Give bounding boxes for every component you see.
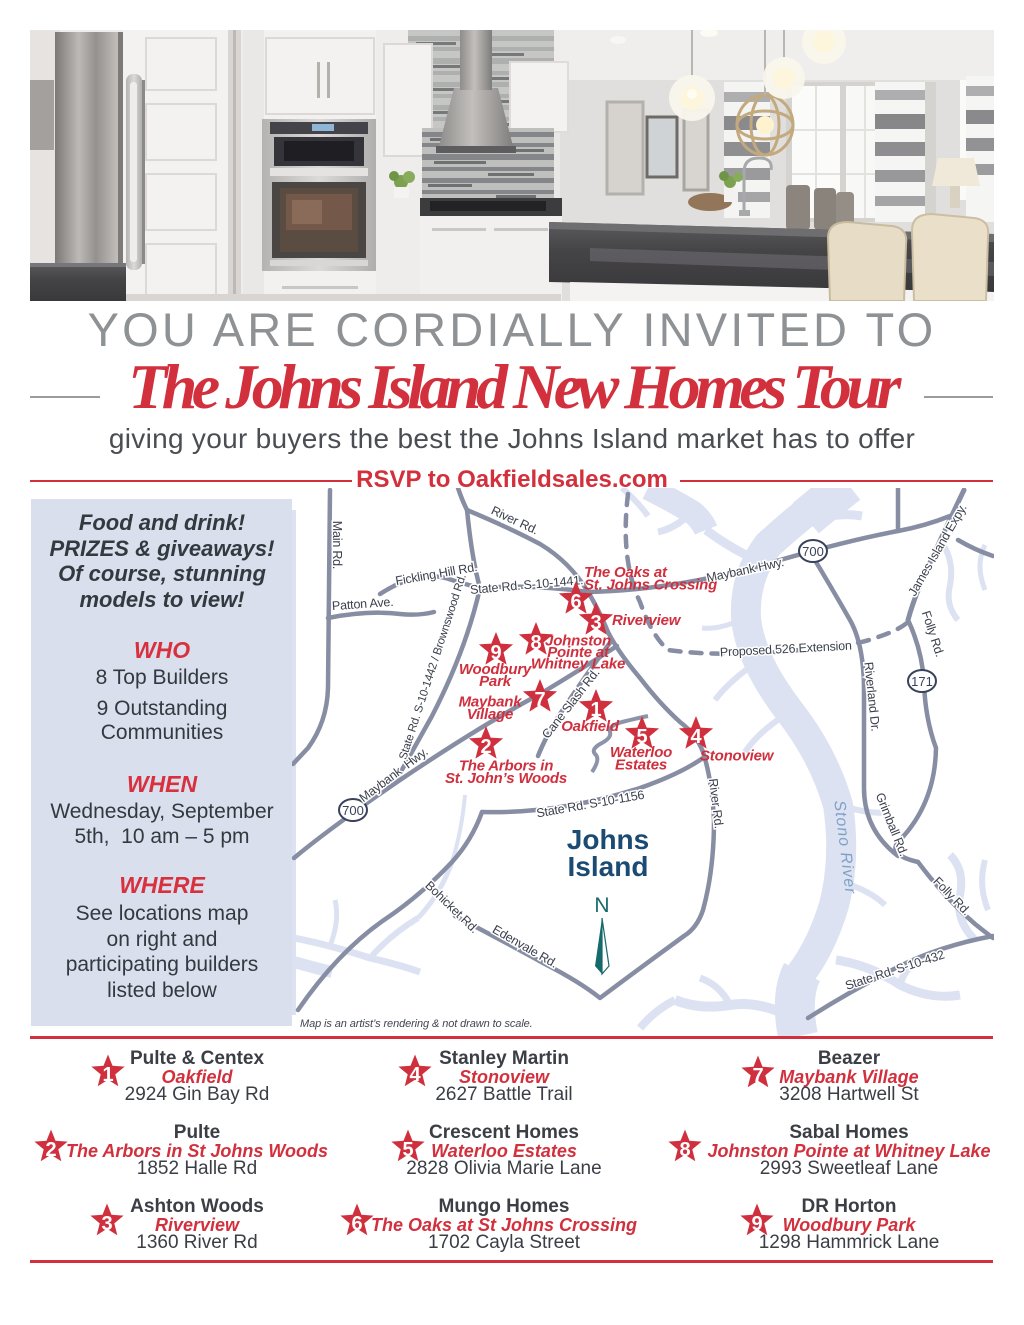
svg-text:6: 6: [351, 1213, 362, 1235]
svg-text:Edenvale Rd.: Edenvale Rd.: [490, 922, 560, 970]
svg-text:8: 8: [530, 632, 541, 654]
svg-text:Island: Island: [568, 851, 649, 882]
svg-text:Oakfield: Oakfield: [561, 718, 620, 735]
svg-text:1: 1: [102, 1064, 113, 1086]
svg-text:Folly Rd.: Folly Rd.: [919, 609, 947, 659]
svg-text:James Island Expy.: James Island Expy.: [906, 502, 970, 599]
svg-text:Maybank Hwy.: Maybank Hwy.: [357, 745, 431, 805]
svg-text:700: 700: [342, 803, 364, 818]
svg-text:Riverview: Riverview: [612, 612, 682, 629]
svg-text:2: 2: [480, 736, 491, 758]
svg-text:Village: Village: [467, 706, 513, 723]
svg-text:St. John’s Woods: St. John’s Woods: [445, 770, 567, 787]
svg-text:Main Rd.: Main Rd.: [330, 521, 344, 569]
svg-text:4: 4: [409, 1064, 421, 1086]
svg-text:Stonoview: Stonoview: [700, 748, 775, 765]
svg-text:2: 2: [45, 1139, 56, 1161]
svg-text:7: 7: [534, 689, 545, 711]
svg-text:700: 700: [802, 544, 824, 559]
svg-text:3: 3: [590, 612, 601, 634]
svg-text:Folly Rd.: Folly Rd.: [930, 874, 973, 918]
svg-text:Patton Ave.: Patton Ave.: [332, 595, 394, 613]
svg-text:Estates: Estates: [615, 757, 667, 774]
svg-text:6: 6: [570, 591, 581, 613]
svg-text:Park: Park: [479, 673, 512, 690]
svg-text:4: 4: [690, 726, 702, 748]
svg-text:8: 8: [679, 1139, 690, 1161]
svg-text:171: 171: [911, 674, 933, 689]
svg-text:Whitney Lake: Whitney Lake: [531, 656, 625, 673]
svg-text:St. Johns Crossing: St. Johns Crossing: [584, 577, 717, 594]
svg-text:5: 5: [402, 1139, 413, 1161]
svg-text:Bohicket Rd.: Bohicket Rd.: [422, 878, 481, 936]
svg-text:N: N: [594, 894, 609, 917]
svg-text:9: 9: [751, 1213, 762, 1235]
svg-text:7: 7: [752, 1065, 763, 1087]
svg-text:State Rd. S-10-1156: State Rd. S-10-1156: [535, 788, 645, 821]
svg-text:River Rd.: River Rd.: [706, 778, 726, 830]
svg-text:3: 3: [101, 1213, 112, 1235]
